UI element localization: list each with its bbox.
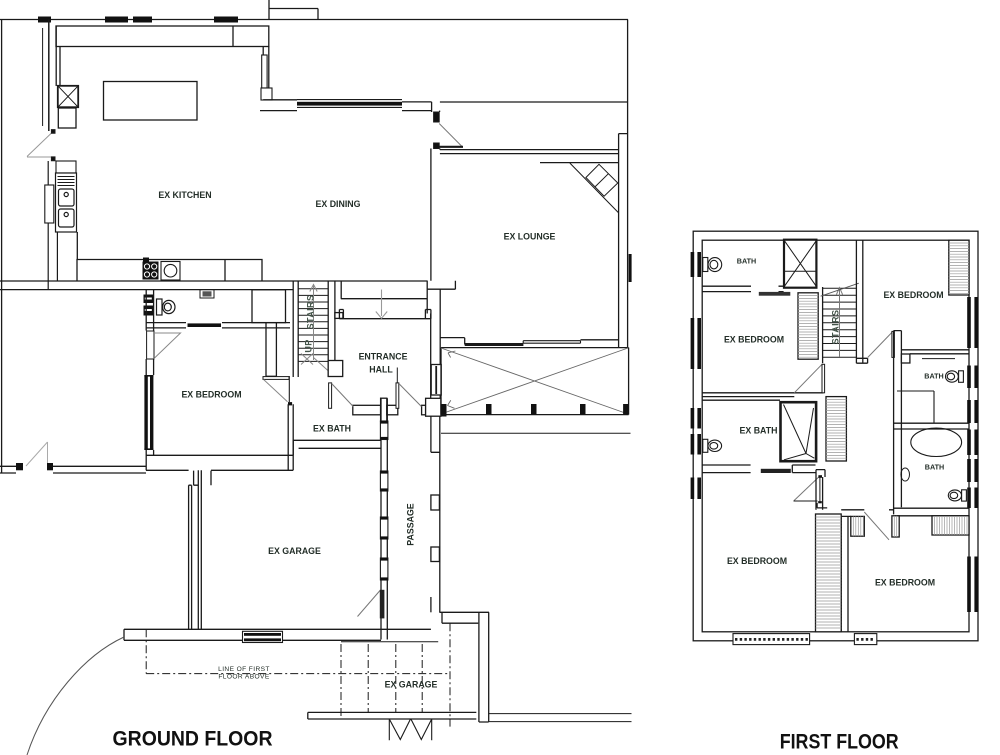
svg-text:BATH: BATH <box>924 372 943 381</box>
svg-text:EX BATH: EX BATH <box>740 426 778 436</box>
svg-text:BATH: BATH <box>925 463 944 472</box>
svg-text:STAIRS: STAIRS <box>306 295 316 330</box>
svg-text:UP: UP <box>304 339 314 352</box>
svg-text:FLOOR ABOVE: FLOOR ABOVE <box>218 674 270 681</box>
svg-text:EX BEDROOM: EX BEDROOM <box>181 390 241 400</box>
svg-text:GROUND FLOOR: GROUND FLOOR <box>113 728 273 751</box>
svg-text:ENTRANCE: ENTRANCE <box>359 352 408 362</box>
svg-text:EX DINING: EX DINING <box>316 199 361 209</box>
svg-text:PASSAGE: PASSAGE <box>406 503 416 545</box>
svg-text:BATH: BATH <box>737 257 756 266</box>
svg-text:STAIRS: STAIRS <box>831 310 841 345</box>
svg-text:EX BEDROOM: EX BEDROOM <box>724 335 784 345</box>
svg-text:EX LOUNGE: EX LOUNGE <box>504 232 556 242</box>
svg-text:EX KITCHEN: EX KITCHEN <box>158 190 211 200</box>
svg-text:HALL: HALL <box>369 365 393 375</box>
svg-text:EX GARAGE: EX GARAGE <box>268 546 321 556</box>
svg-text:EX BATH: EX BATH <box>313 424 351 434</box>
svg-text:LINE OF FIRST: LINE OF FIRST <box>218 666 270 673</box>
svg-text:EX GARAGE: EX GARAGE <box>385 680 438 690</box>
svg-text:FIRST FLOOR: FIRST FLOOR <box>780 731 899 754</box>
svg-text:EX BEDROOM: EX BEDROOM <box>727 556 787 566</box>
svg-text:EX BEDROOM: EX BEDROOM <box>875 578 935 588</box>
svg-text:EX BEDROOM: EX BEDROOM <box>883 290 943 300</box>
